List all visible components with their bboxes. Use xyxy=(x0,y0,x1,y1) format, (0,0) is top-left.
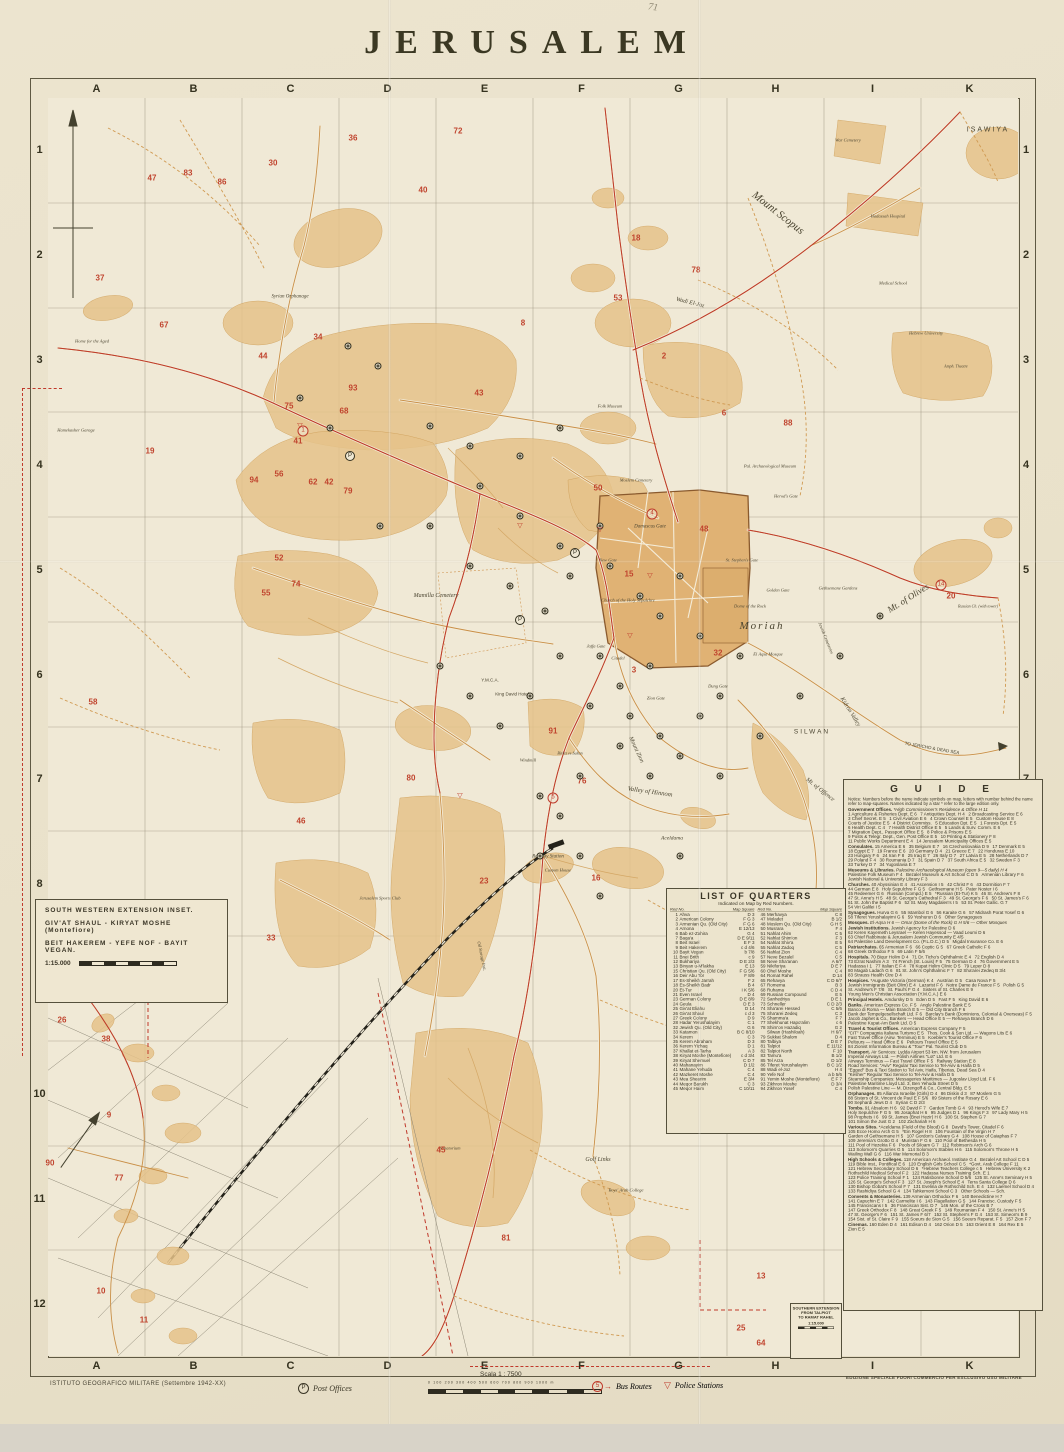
guide-entry: 34 Yugoslavia E 7 xyxy=(880,863,916,868)
guide-entry: Syrian C D 2/3 xyxy=(896,1101,925,1106)
guide-entry: Fast F 5 xyxy=(939,998,956,1003)
quarters-header: Red No. xyxy=(758,907,773,912)
old-city xyxy=(596,490,750,668)
guide-entry: 84 Zionist Information Bureau & "Tour" P… xyxy=(848,1045,967,1050)
quarter-map-square: C 10/11 xyxy=(739,1087,754,1092)
quarters-column-right: Red No.Map Square46MerhavyaC 847MoladetB… xyxy=(757,907,843,1091)
bus-routes-legend: 5 → Bus Routes xyxy=(592,1381,652,1392)
guide-entry: 133 Rashidiya School G 4 xyxy=(848,1189,900,1194)
guide-entry: 162 Orion D 5 xyxy=(935,1223,963,1228)
guide-section: Jewish Institutions. Jewish Agency for P… xyxy=(848,926,1038,944)
sw-inset xyxy=(48,978,468,1356)
grid-letter: C xyxy=(242,1356,339,1375)
grid-number: 7 xyxy=(31,727,48,832)
guide-notice: Notice: Numbers before the name indicate… xyxy=(848,797,1038,806)
quarters-subtitle: Indicated on Map by Red Numbers. xyxy=(687,902,825,907)
guide-entry: 54 Viri Galilei I 5 xyxy=(848,905,881,910)
guide-entry: 90 Sephardi Jews D 4 xyxy=(848,1101,892,1106)
sw-inset-line1: SOUTH WESTERN EXTENSION INSET. xyxy=(45,907,218,914)
grid-letter: C xyxy=(242,79,339,98)
guide-section: High Schools & Colleges. 118 American Ar… xyxy=(848,1158,1038,1194)
grid-letter: F xyxy=(533,79,630,98)
guide-entry: Other Synagogues xyxy=(945,915,983,920)
survey-boundary-left xyxy=(22,388,23,1056)
bus-routes-label: Bus Routes xyxy=(616,1382,652,1391)
handwritten-mark: 71 xyxy=(647,1,658,13)
guide-entry: 81 St. John's Ophthalmic F 7 xyxy=(896,969,954,974)
guide-section: Orphanages. 85 Allianza Israelite (Girls… xyxy=(848,1092,1038,1106)
guide-entry: 156 Soeurs Reparat. F 5 xyxy=(953,1217,1002,1222)
guide-entry: 53 St. Peter Gallic. G 7 xyxy=(961,901,1007,906)
grid-letter: K xyxy=(921,79,1018,98)
guide-entry: 116 War Memorial B 3 xyxy=(884,1152,928,1157)
sw-inset-scale: 1:15.000 xyxy=(45,960,71,967)
sw-inset-box: SOUTH WESTERN EXTENSION INSET. GIV'AT SH… xyxy=(35,899,228,1003)
grid-number: 6 xyxy=(31,622,48,727)
grid-number: 4 xyxy=(31,412,48,517)
guide-entry: Migdal Insurance Co. E 6 xyxy=(952,940,1003,945)
bus-route-icon: 5 xyxy=(592,1381,603,1392)
fold-crease xyxy=(0,560,1064,563)
guide-box: G U I D E Notice: Numbers before the nam… xyxy=(843,779,1043,1311)
grid-number: 1 xyxy=(31,98,48,203)
quarter-number: 45 xyxy=(670,1087,678,1092)
guide-entry: 82 Sha'arei Zedeq B 3/4 xyxy=(957,969,1005,974)
guide-entry: Other Schools — Sch. xyxy=(961,1189,1006,1194)
guide-entry: 115 Solomon's Throne H 5 xyxy=(965,1148,1018,1153)
quarters-row: 94Zikhron YosefC 4 xyxy=(758,1087,843,1092)
guide-section: Cinemas. 160 Eden D 4161 Edison D 4162 O… xyxy=(848,1223,1038,1232)
guide-section: Principal Hotels. Amdursky D 5Eden D 5Fa… xyxy=(848,998,1038,1003)
guide-entry: 68 Greek Orthodox F 5 xyxy=(848,950,894,955)
guide-entry: 100 St. Stephen G 7 xyxy=(945,1115,986,1120)
fold-crease xyxy=(698,0,701,1452)
map-title: JERUSALEM xyxy=(0,24,1064,62)
quarters-box: LIST OF QUARTERS Indicated on Map by Red… xyxy=(666,888,846,1134)
police-station-icon: ▽ xyxy=(664,1381,671,1390)
grid-number: 3 xyxy=(31,308,48,413)
fold-crease xyxy=(388,0,391,1452)
guide-section: Mosques. El-Aqsa H 6 — Omar (Dome of the… xyxy=(848,921,1038,926)
guide-entry: 69 Latin F 5/6 xyxy=(898,950,926,955)
guide-entry: 52 St. Mary Magdalen's I 5 xyxy=(905,901,958,906)
grid-letter: B xyxy=(145,79,242,98)
grid-number: 3 xyxy=(1018,308,1034,413)
guide-entry: 67 Greek Catholic F 6 xyxy=(947,945,991,950)
guide-section: Museums & Libraries. Palestine Archaeolo… xyxy=(848,868,1038,882)
quarters-column-headers: Red No.Map Square xyxy=(670,907,755,912)
guide-section-note: El-Aqsa H 6 — Omar (Dome of the Rock) G … xyxy=(870,920,1007,925)
guide-entry: 97 Lady Mary H 5 xyxy=(992,1111,1028,1116)
post-offices-label: Post Offices xyxy=(313,1384,352,1393)
guide-entry: 155 Soeurs de Sion G 5 xyxy=(902,1217,950,1222)
guide-section-heading: Principal Hotels. xyxy=(848,997,885,1002)
edition-imprint: EDIZIONE SPECIALE FUORI COMMERCIO PER ES… xyxy=(846,1375,1036,1380)
post-offices-legend: P Post Offices xyxy=(298,1383,352,1394)
guide-entry: 134 Tahkemoni School C 3 xyxy=(904,1189,958,1194)
compass-north-arrow xyxy=(53,110,93,298)
guide-section: Travel & Tourist Offices. American Expre… xyxy=(848,1027,1038,1050)
quarter-name: Zikhron Yosef xyxy=(767,1087,834,1092)
guide-entry: Young Men's Christian Association (Y.M.C… xyxy=(848,992,946,997)
grid-number: 2 xyxy=(31,203,48,308)
guide-section: Banks. American Express Co. F 5Anglo Pal… xyxy=(848,1003,1038,1026)
guide-entry: 59 Yeshurun D 6 xyxy=(908,915,941,920)
guide-entry: King David E 6 xyxy=(959,998,989,1003)
guide-entry: Amdursky D 5 xyxy=(885,998,913,1003)
southern-inset-box: SOUTHERN EXTENSION FROM TALPIOT TO RAMAT… xyxy=(790,1303,842,1359)
scanned-map-sheet: { "title": "JERUSALEM", "handwritten_mar… xyxy=(0,0,1064,1452)
southern-inset-scalebar xyxy=(798,1327,834,1330)
grid-number: 5 xyxy=(31,517,48,622)
guide-entry: Armenian Library F 6 xyxy=(982,873,1024,878)
grid-letter: H xyxy=(727,79,824,98)
guide-section: Transport. Air Services: Lydda Airport 5… xyxy=(848,1050,1038,1091)
guide-section: Patriarchates. 65 Armenian F 666 Coptic … xyxy=(848,945,1038,954)
grid-letter: A xyxy=(48,1356,145,1375)
quarter-map-square: C 4 xyxy=(835,1087,842,1092)
scale-ticks: 0 100 200 300 400 500 600 700 800 900 10… xyxy=(428,1381,544,1384)
grid-number: 5 xyxy=(1018,517,1034,622)
guide-entry: 11 Public Works Department E 4 xyxy=(848,839,913,844)
guide-entry: 32 Sweden F 3 xyxy=(990,858,1020,863)
southern-inset-line3: TO RAMAT RAHEL xyxy=(792,1315,840,1320)
grid-number: 10 xyxy=(31,1041,48,1146)
guide-entry: 102 Zachariah H 6 xyxy=(899,1120,936,1125)
guide-entry: 33 Turkey D 7 xyxy=(848,863,876,868)
quarter-name: Meqor Haim xyxy=(680,1087,739,1092)
quarters-column-headers: Red No.Map Square xyxy=(758,907,843,912)
guide-section: Hospices. *Auguste Victoria (German) K 4… xyxy=(848,979,1038,997)
survey-boundary-bottom xyxy=(470,1366,710,1367)
grid-letter: B xyxy=(145,1356,242,1375)
guide-entry: Polish Palestine Line — M. Dizengoff & C… xyxy=(848,1086,971,1091)
guide-section: Government Offices. *High Commissioner's… xyxy=(848,808,1038,844)
grid-letter: A xyxy=(48,79,145,98)
quarters-header: Map Square xyxy=(820,907,842,912)
grid-number: 12 xyxy=(31,1251,48,1356)
guide-entry: 37 South Africa E 5 xyxy=(948,858,987,863)
guide-entry: Eden D 5 xyxy=(916,998,935,1003)
guide-entry: Jewish National & University Library F 3 xyxy=(848,877,928,882)
guide-entry: 101 Simon the Just G 2 xyxy=(848,1120,895,1125)
bus-route-arrow-icon: → xyxy=(604,1382,612,1391)
guide-entry: 164 Rex E 5 xyxy=(999,1223,1024,1228)
guide-section: Hospitals. 70 Biqur Holim D 471 Dr. Tich… xyxy=(848,955,1038,978)
guide-entry: 160 Eden D 4 xyxy=(869,1223,897,1228)
guide-entry: 64 Palestine Land Development Co. (P.L.D… xyxy=(848,940,949,945)
guide-section: Tombs. 91 Absalom H 692 David F 7Garden … xyxy=(848,1106,1038,1124)
guide-entry: Palestine Kupat-Am Bank Ltd. D 5 xyxy=(848,1021,916,1026)
backing-paper xyxy=(0,1424,1064,1452)
grid-number: 4 xyxy=(1018,412,1034,517)
guide-section: Various Sites. *Aceldama (Field of the B… xyxy=(848,1125,1038,1157)
guide-sections: Government Offices. *High Commissioner's… xyxy=(848,808,1038,1232)
guide-entry: Zion E 5 xyxy=(848,1227,865,1232)
guide-entry: 31 Spain D 7 xyxy=(918,858,944,863)
post-office-icon: P xyxy=(298,1383,309,1394)
southern-inset-scale: 1:15.000 xyxy=(792,1321,840,1326)
quarters-header: Map Square xyxy=(733,907,755,912)
guide-section: Convents & Monasteries. 139 Armenian Ort… xyxy=(848,1195,1038,1222)
police-stations-legend: ▽ Police Stations xyxy=(664,1381,723,1390)
guide-section: Consulates. 15 America E 635 Belgium E 7… xyxy=(848,845,1038,868)
guide-entry: 161 Edison D 4 xyxy=(900,1223,931,1228)
guide-entry: 163 Orient E 8 xyxy=(966,1223,995,1228)
scale-label: Scala 1 : 7500 xyxy=(480,1371,522,1378)
sw-inset-line3: BEIT HAKEREM - YEFE NOF - BAYIT VEGAN. xyxy=(45,940,218,954)
guide-entry: 157 Zion F 7 xyxy=(1006,1217,1031,1222)
guide-entry: 14 Jerusalem Municipality Offices E 5 xyxy=(916,839,991,844)
quarters-column-left: Red No.Map Square1AhvaD 32American Colon… xyxy=(670,907,757,1091)
guide-section: Synagogues. Hurva G 655 Istambol G 656 K… xyxy=(848,911,1038,920)
guide-entry: 89 Sisters of the Rosary E 6 xyxy=(932,1096,988,1101)
guide-entry: Wailing Wall G 6 xyxy=(848,1152,881,1157)
grid-number: 11 xyxy=(31,1146,48,1251)
quarters-title: LIST OF QUARTERS xyxy=(670,891,842,901)
guide-entry: Hebrew University K 2 xyxy=(986,1167,1031,1172)
sw-inset-scalebar xyxy=(79,961,177,966)
survey-boundary-left-top xyxy=(22,388,62,389)
grid-letter: I xyxy=(824,79,921,98)
guide-entry: 83 Strauss Health Ctre D 4 xyxy=(848,973,902,978)
grid-letter: G xyxy=(630,79,727,98)
guide-section: Churches. 40 Abyssinian E 441 Ascension … xyxy=(848,883,1038,910)
guide-entry: 58 Tiferet Yerushalayimi G 6 xyxy=(848,915,904,920)
grid-number: 2 xyxy=(1018,203,1034,308)
grid-letter: K xyxy=(921,1356,1018,1375)
grid-letter: E xyxy=(436,79,533,98)
southern-inset-boundary xyxy=(700,1240,766,1310)
grid-number: 1 xyxy=(1018,98,1034,203)
guide-entry: Polish G 5 xyxy=(1003,983,1024,988)
guide-section-heading: Mosques. xyxy=(848,920,870,925)
main-scalebar xyxy=(428,1389,602,1394)
quarters-header: Red No. xyxy=(670,907,685,912)
grid-numbers-left: 123456789101112 xyxy=(31,98,48,1356)
station-building xyxy=(548,839,565,849)
publisher-imprint: ISTITUTO GEOGRAFICO MILITARE (Settembre … xyxy=(50,1381,226,1387)
quarters-row: 45Meqor HaimC 10/11 xyxy=(670,1087,755,1092)
guide-entry: 154 Sist. of St. Claire F 9 xyxy=(848,1217,898,1222)
grid-letters-top: ABCDEFGHIK xyxy=(48,79,1018,98)
quarter-number: 94 xyxy=(758,1087,766,1092)
grid-number: 6 xyxy=(1018,622,1034,727)
sw-inset-line2: GIV'AT SHAUL - KIRYAT MOSHE (Montefiore) xyxy=(45,920,218,934)
guide-title: G U I D E xyxy=(848,784,1038,795)
police-stations-label: Police Stations xyxy=(675,1381,723,1390)
